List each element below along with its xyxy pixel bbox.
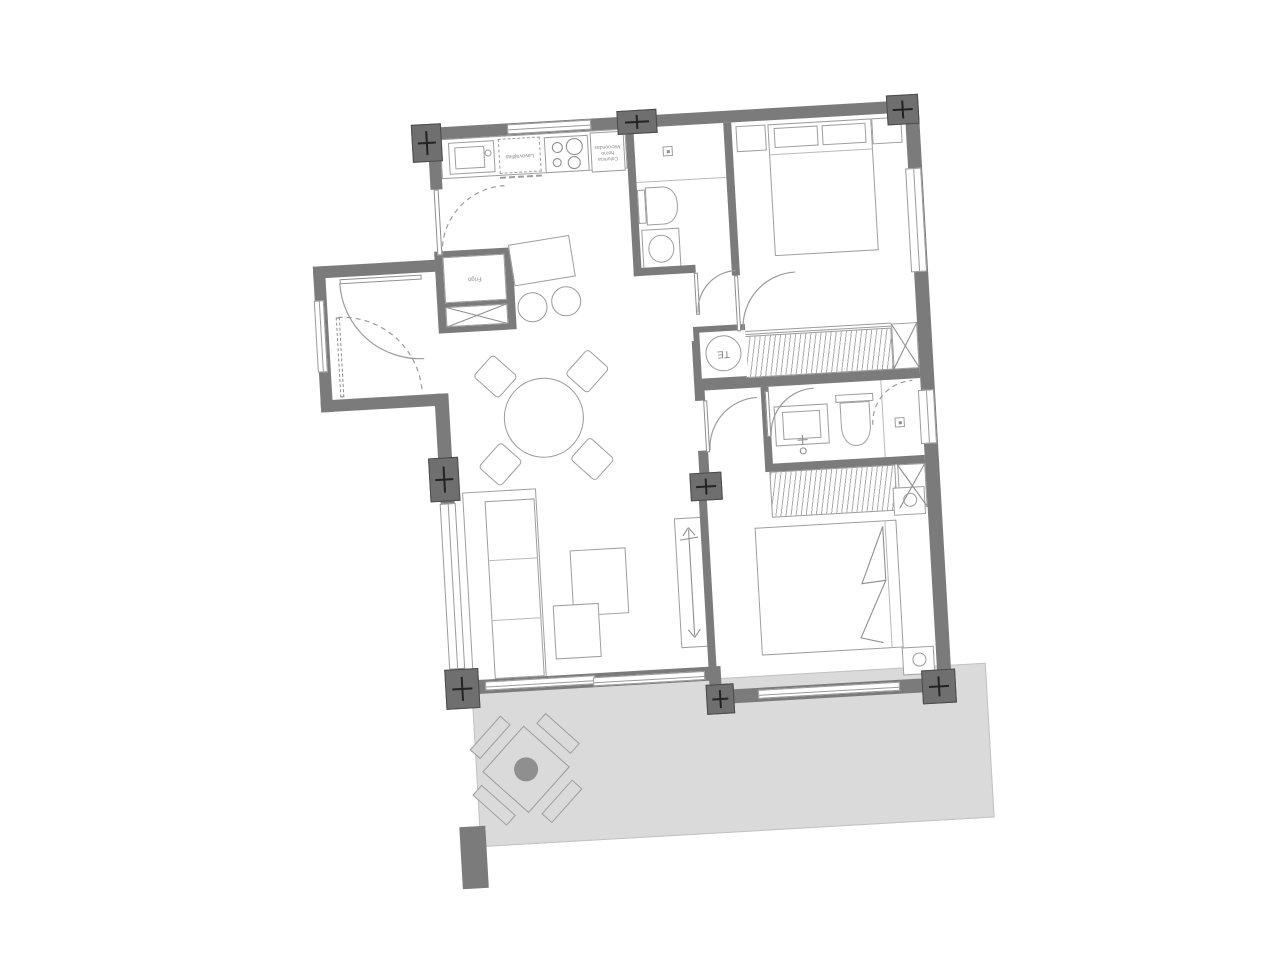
shaft1-cross-icon [891,322,920,369]
oven-column-label: Columna horno Microondas [591,132,625,172]
bar-stool [517,291,549,323]
water-heater: TE [704,334,742,372]
pillar-cross [921,669,957,705]
nightstand [735,125,766,153]
bathroom1-door-arc [696,270,738,312]
bathroom2-faucet-icon [795,435,810,458]
pillar-cross [689,472,723,502]
shaft2-cross-icon [897,463,927,509]
hall2-door-arc [707,397,760,450]
cabinet-cross-icon [445,304,508,328]
vestibule-door-arc [338,313,422,397]
dining-table [502,376,586,460]
bathroom2-window [918,389,937,444]
toilet1-bowl [645,186,679,226]
pillar-cross [616,109,657,135]
cooktop-burners-icon [544,135,590,173]
bed2-blanket-fold-icon [755,520,904,656]
shower1-drain-icon [662,146,673,157]
sofa-seat [485,498,545,679]
dining-chair [478,442,523,487]
bedroom1-window [905,168,927,273]
vestibule-wall-bottom [321,394,443,413]
bedroom1-door-arc [740,272,798,330]
pillar-cross [886,94,920,126]
bathroom2-door-arc [769,388,817,436]
dining-chair [570,437,615,482]
oven-column-label-3: Microondas [594,142,620,149]
kitchen-peninsula [508,235,576,286]
pillar-cross [706,683,736,715]
living-window [440,503,466,670]
coffee-table [553,603,602,660]
terrace-wall-stub [459,826,489,889]
oven-column: Columna horno Microondas [590,131,626,173]
dining-chair [565,349,610,394]
kitchen-door-arc [439,186,509,256]
pillar-cross [428,457,460,503]
dishwasher: Lavavajillas [498,137,542,174]
shower-door-arc [870,380,914,424]
fridge: Frigo [442,254,507,303]
dishwasher-label: Lavavajillas [499,138,541,173]
pillar-cross [444,668,480,710]
kitchen-sink-basin [454,146,485,170]
pillow [774,126,819,148]
shower1-screen [636,177,726,183]
pillow [821,123,866,145]
floor-plan: Lavavajillas Columna horno Microondas Fr… [427,128,428,129]
water-heater-label: TE [706,335,742,371]
bar-stool [550,285,582,317]
wardrobe-2 [769,465,897,518]
pillar-cross [411,123,443,163]
fridge-label: Frigo [444,255,506,302]
toilet2-bowl [839,401,871,447]
floor-plan-canvas: Lavavajillas Columna horno Microondas Fr… [0,0,1280,960]
